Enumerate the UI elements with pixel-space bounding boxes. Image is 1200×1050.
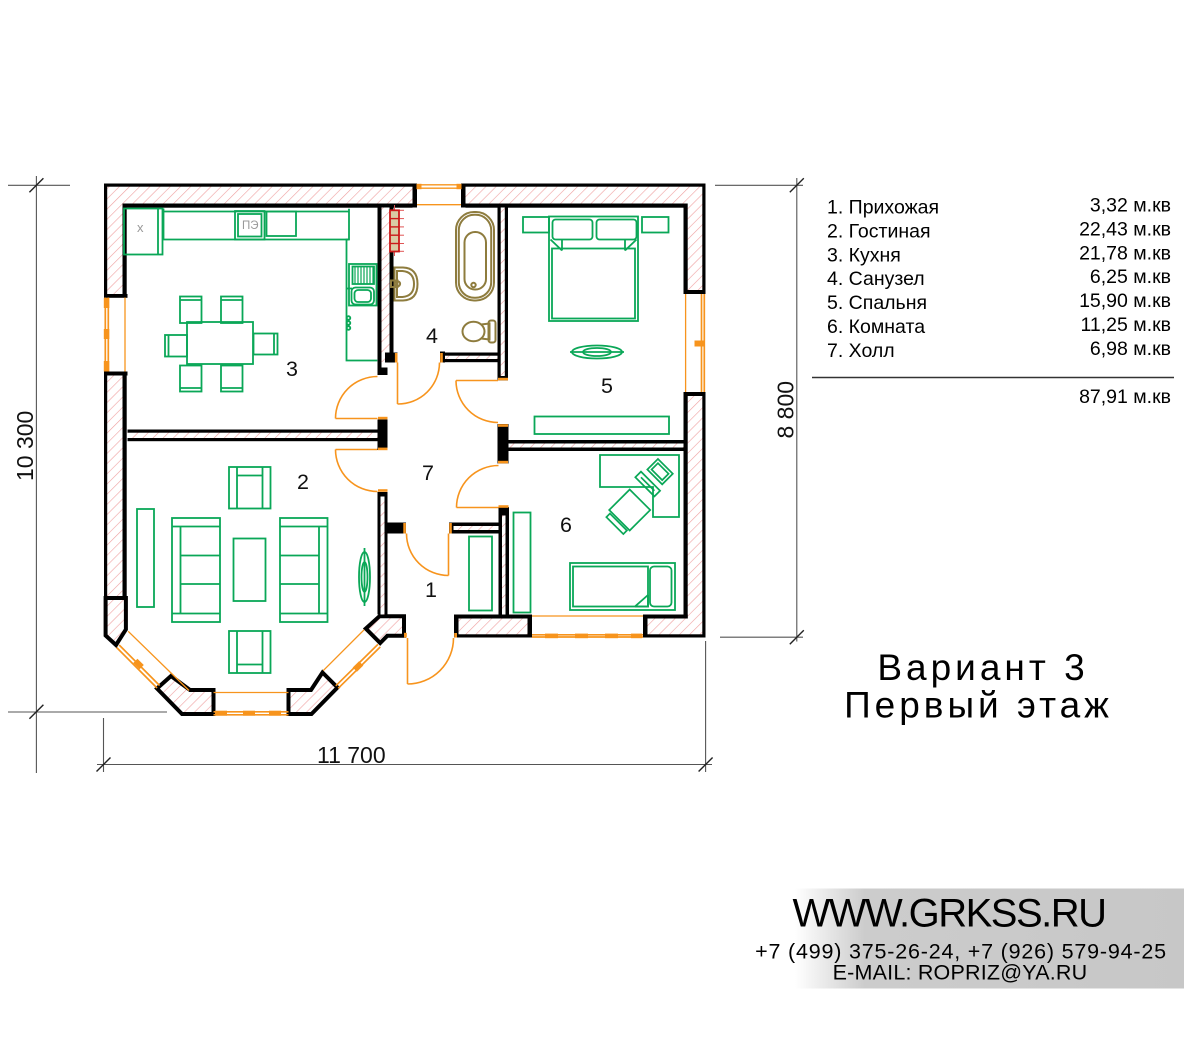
svg-text:x: x <box>137 220 144 235</box>
svg-text:22,43 м.кв: 22,43 м.кв <box>1079 218 1171 240</box>
svg-text:Вариант 3: Вариант 3 <box>877 647 1088 688</box>
svg-text:3. Кухня: 3. Кухня <box>827 244 901 266</box>
svg-text:5. Спальня: 5. Спальня <box>827 292 927 314</box>
svg-text:4: 4 <box>426 324 438 348</box>
svg-text:4. Санузел: 4. Санузел <box>827 268 925 290</box>
svg-text:7. Холл: 7. Холл <box>827 340 895 362</box>
svg-text:3: 3 <box>286 357 298 381</box>
svg-text:2. Гостиная: 2. Гостиная <box>827 220 931 242</box>
svg-text:5: 5 <box>601 374 613 398</box>
svg-text:21,78 м.кв: 21,78 м.кв <box>1079 242 1171 264</box>
svg-text:ПЭ: ПЭ <box>242 220 259 232</box>
svg-text:6. Комната: 6. Комната <box>827 316 925 338</box>
svg-text:Первый этаж: Первый этаж <box>844 684 1113 725</box>
svg-text:1: 1 <box>425 578 437 602</box>
svg-text:1. Прихожая: 1. Прихожая <box>827 197 939 219</box>
svg-text:2: 2 <box>297 470 309 494</box>
svg-text:87,91 м.кв: 87,91 м.кв <box>1079 386 1171 408</box>
svg-text:8 800: 8 800 <box>773 381 799 439</box>
svg-text:10 300: 10 300 <box>12 411 38 481</box>
svg-text:6: 6 <box>560 513 572 537</box>
svg-text:7: 7 <box>422 461 434 485</box>
svg-text:11 700: 11 700 <box>317 742 386 768</box>
svg-text:6,25 м.кв: 6,25 м.кв <box>1090 266 1171 288</box>
svg-text:15,90 м.кв: 15,90 м.кв <box>1079 290 1171 312</box>
svg-text:WWW.GRKSS.RU: WWW.GRKSS.RU <box>792 892 1105 936</box>
svg-text:11,25 м.кв: 11,25 м.кв <box>1081 314 1171 336</box>
svg-text:6,98 м.кв: 6,98 м.кв <box>1090 338 1171 360</box>
svg-text:3,32 м.кв: 3,32 м.кв <box>1090 195 1171 217</box>
svg-text:E-MAIL: ROPRIZ@YA.RU: E-MAIL: ROPRIZ@YA.RU <box>833 961 1088 985</box>
